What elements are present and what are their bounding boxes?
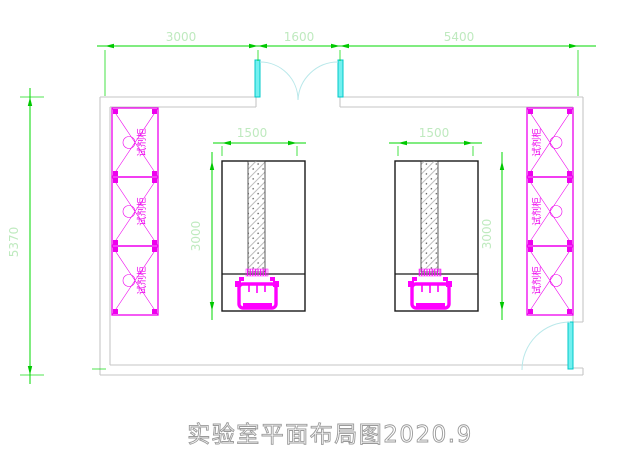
dim-label-bench-depth: 3000 (189, 221, 203, 252)
dim-label-bench-depth: 3000 (480, 219, 494, 250)
floor-plan-canvas: 3000 1600 5400 5370 (0, 0, 619, 469)
cabinet-corner (528, 109, 533, 114)
cabinet-label: 试剂柜 (531, 266, 543, 295)
cabinet-corner (152, 309, 157, 314)
knob-icon (123, 137, 135, 149)
dim-arrow-icon (222, 141, 231, 145)
grille-icon (419, 269, 441, 276)
cabinet-corner (528, 171, 533, 176)
dim-arrow-icon (288, 141, 297, 145)
dimension-left: 5370 (7, 88, 106, 384)
knob-icon (123, 275, 135, 287)
door-swing-icon (298, 62, 338, 100)
knob-icon (123, 206, 135, 218)
cabinet-corner (567, 309, 572, 314)
dim-label-top-right: 5400 (444, 30, 475, 44)
cabinet-corner (113, 309, 118, 314)
cabinet-corner (152, 247, 157, 252)
cabinet-corner (528, 240, 533, 245)
cabinet-corner (152, 171, 157, 176)
dim-label-bench-width: 1500 (237, 126, 268, 140)
cabinet-corner (567, 171, 572, 176)
room-walls (100, 97, 583, 375)
cabinet-corner (113, 109, 118, 114)
faucet-icon (412, 277, 417, 281)
faucet-icon (270, 277, 275, 281)
cabinet-label: 试剂柜 (531, 128, 543, 157)
cabinet-left-2: 试剂柜 (112, 177, 158, 246)
cabinet-corner (113, 178, 118, 183)
cabinet-left-3: 试剂柜 (112, 246, 158, 315)
sink-base (243, 303, 272, 307)
cabinet-corner (113, 247, 118, 252)
dim-arrow-icon (210, 302, 214, 311)
drawing-title: 实验室平面布局图2020.9 (187, 422, 472, 448)
dim-arrow-icon (258, 44, 267, 48)
dim-arrow-icon (500, 161, 504, 170)
cabinet-corner (152, 240, 157, 245)
cabinet-corner (528, 309, 533, 314)
door-leaf-icon (568, 322, 573, 369)
dim-arrow-icon (500, 302, 504, 311)
cabinet-corner (567, 240, 572, 245)
cabinet-corner (113, 240, 118, 245)
cabinet-corner (528, 178, 533, 183)
dimension-bench-right-width: 1500 (389, 126, 482, 156)
knob-icon (550, 206, 562, 218)
cabinet-right-3: 试剂柜 (527, 246, 573, 315)
cabinet-label: 试剂柜 (136, 197, 148, 226)
sink-base (416, 303, 445, 307)
cabinet-right-2: 试剂柜 (527, 177, 573, 246)
dim-arrow-icon (331, 44, 340, 48)
cabinet-label: 试剂柜 (531, 197, 543, 226)
dim-label-top-middle: 1600 (284, 30, 315, 44)
hatched-duct-icon (248, 161, 265, 272)
cabinet-corner (567, 247, 572, 252)
door-leaf-icon (338, 60, 343, 97)
dim-arrow-icon (249, 44, 258, 48)
cabinet-corner (113, 171, 118, 176)
dim-arrow-icon (464, 141, 473, 145)
dim-label-left: 5370 (7, 227, 21, 258)
extension-lines (20, 97, 106, 375)
door-leaf-icon (255, 60, 260, 97)
dim-arrow-icon (28, 366, 32, 375)
hatched-duct-icon (421, 161, 438, 272)
cabinet-label: 试剂柜 (136, 128, 148, 157)
faucet-icon (443, 277, 448, 281)
dim-arrow-icon (398, 141, 407, 145)
knob-icon (550, 137, 562, 149)
dim-arrow-icon (28, 97, 32, 106)
cabinet-corner (152, 109, 157, 114)
cabinet-corner (567, 178, 572, 183)
dim-label-top-left: 3000 (166, 30, 197, 44)
dim-arrow-icon (340, 44, 349, 48)
cabinet-corner (152, 178, 157, 183)
knob-icon (550, 275, 562, 287)
grille-icon (246, 269, 268, 276)
door-swing-icon (260, 62, 298, 100)
floor-plan-svg: 3000 1600 5400 5370 (0, 0, 619, 469)
double-door-top (255, 60, 343, 100)
dimension-bench-left-depth: 3000 (189, 152, 214, 320)
door-bottom-right (522, 322, 573, 370)
dimension-top: 3000 1600 5400 (97, 30, 596, 96)
dimension-bench-left-width: 1500 (213, 126, 306, 156)
extension-lines (222, 146, 297, 156)
cabinet-label: 试剂柜 (136, 266, 148, 295)
extension-lines (398, 146, 473, 156)
dim-arrow-icon (105, 44, 114, 48)
bench-right (395, 161, 478, 311)
cabinet-corner (567, 109, 572, 114)
dim-arrow-icon (210, 161, 214, 170)
bench-left (222, 161, 305, 311)
cabinet-corner (528, 247, 533, 252)
dim-label-bench-width: 1500 (419, 126, 450, 140)
dimension-bench-right-depth: 3000 (480, 152, 504, 320)
door-swing-icon (522, 322, 570, 370)
faucet-icon (239, 277, 244, 281)
cabinet-left-1: 试剂柜 (112, 108, 158, 177)
cabinet-right-1: 试剂柜 (527, 108, 573, 177)
dim-arrow-icon (569, 44, 578, 48)
